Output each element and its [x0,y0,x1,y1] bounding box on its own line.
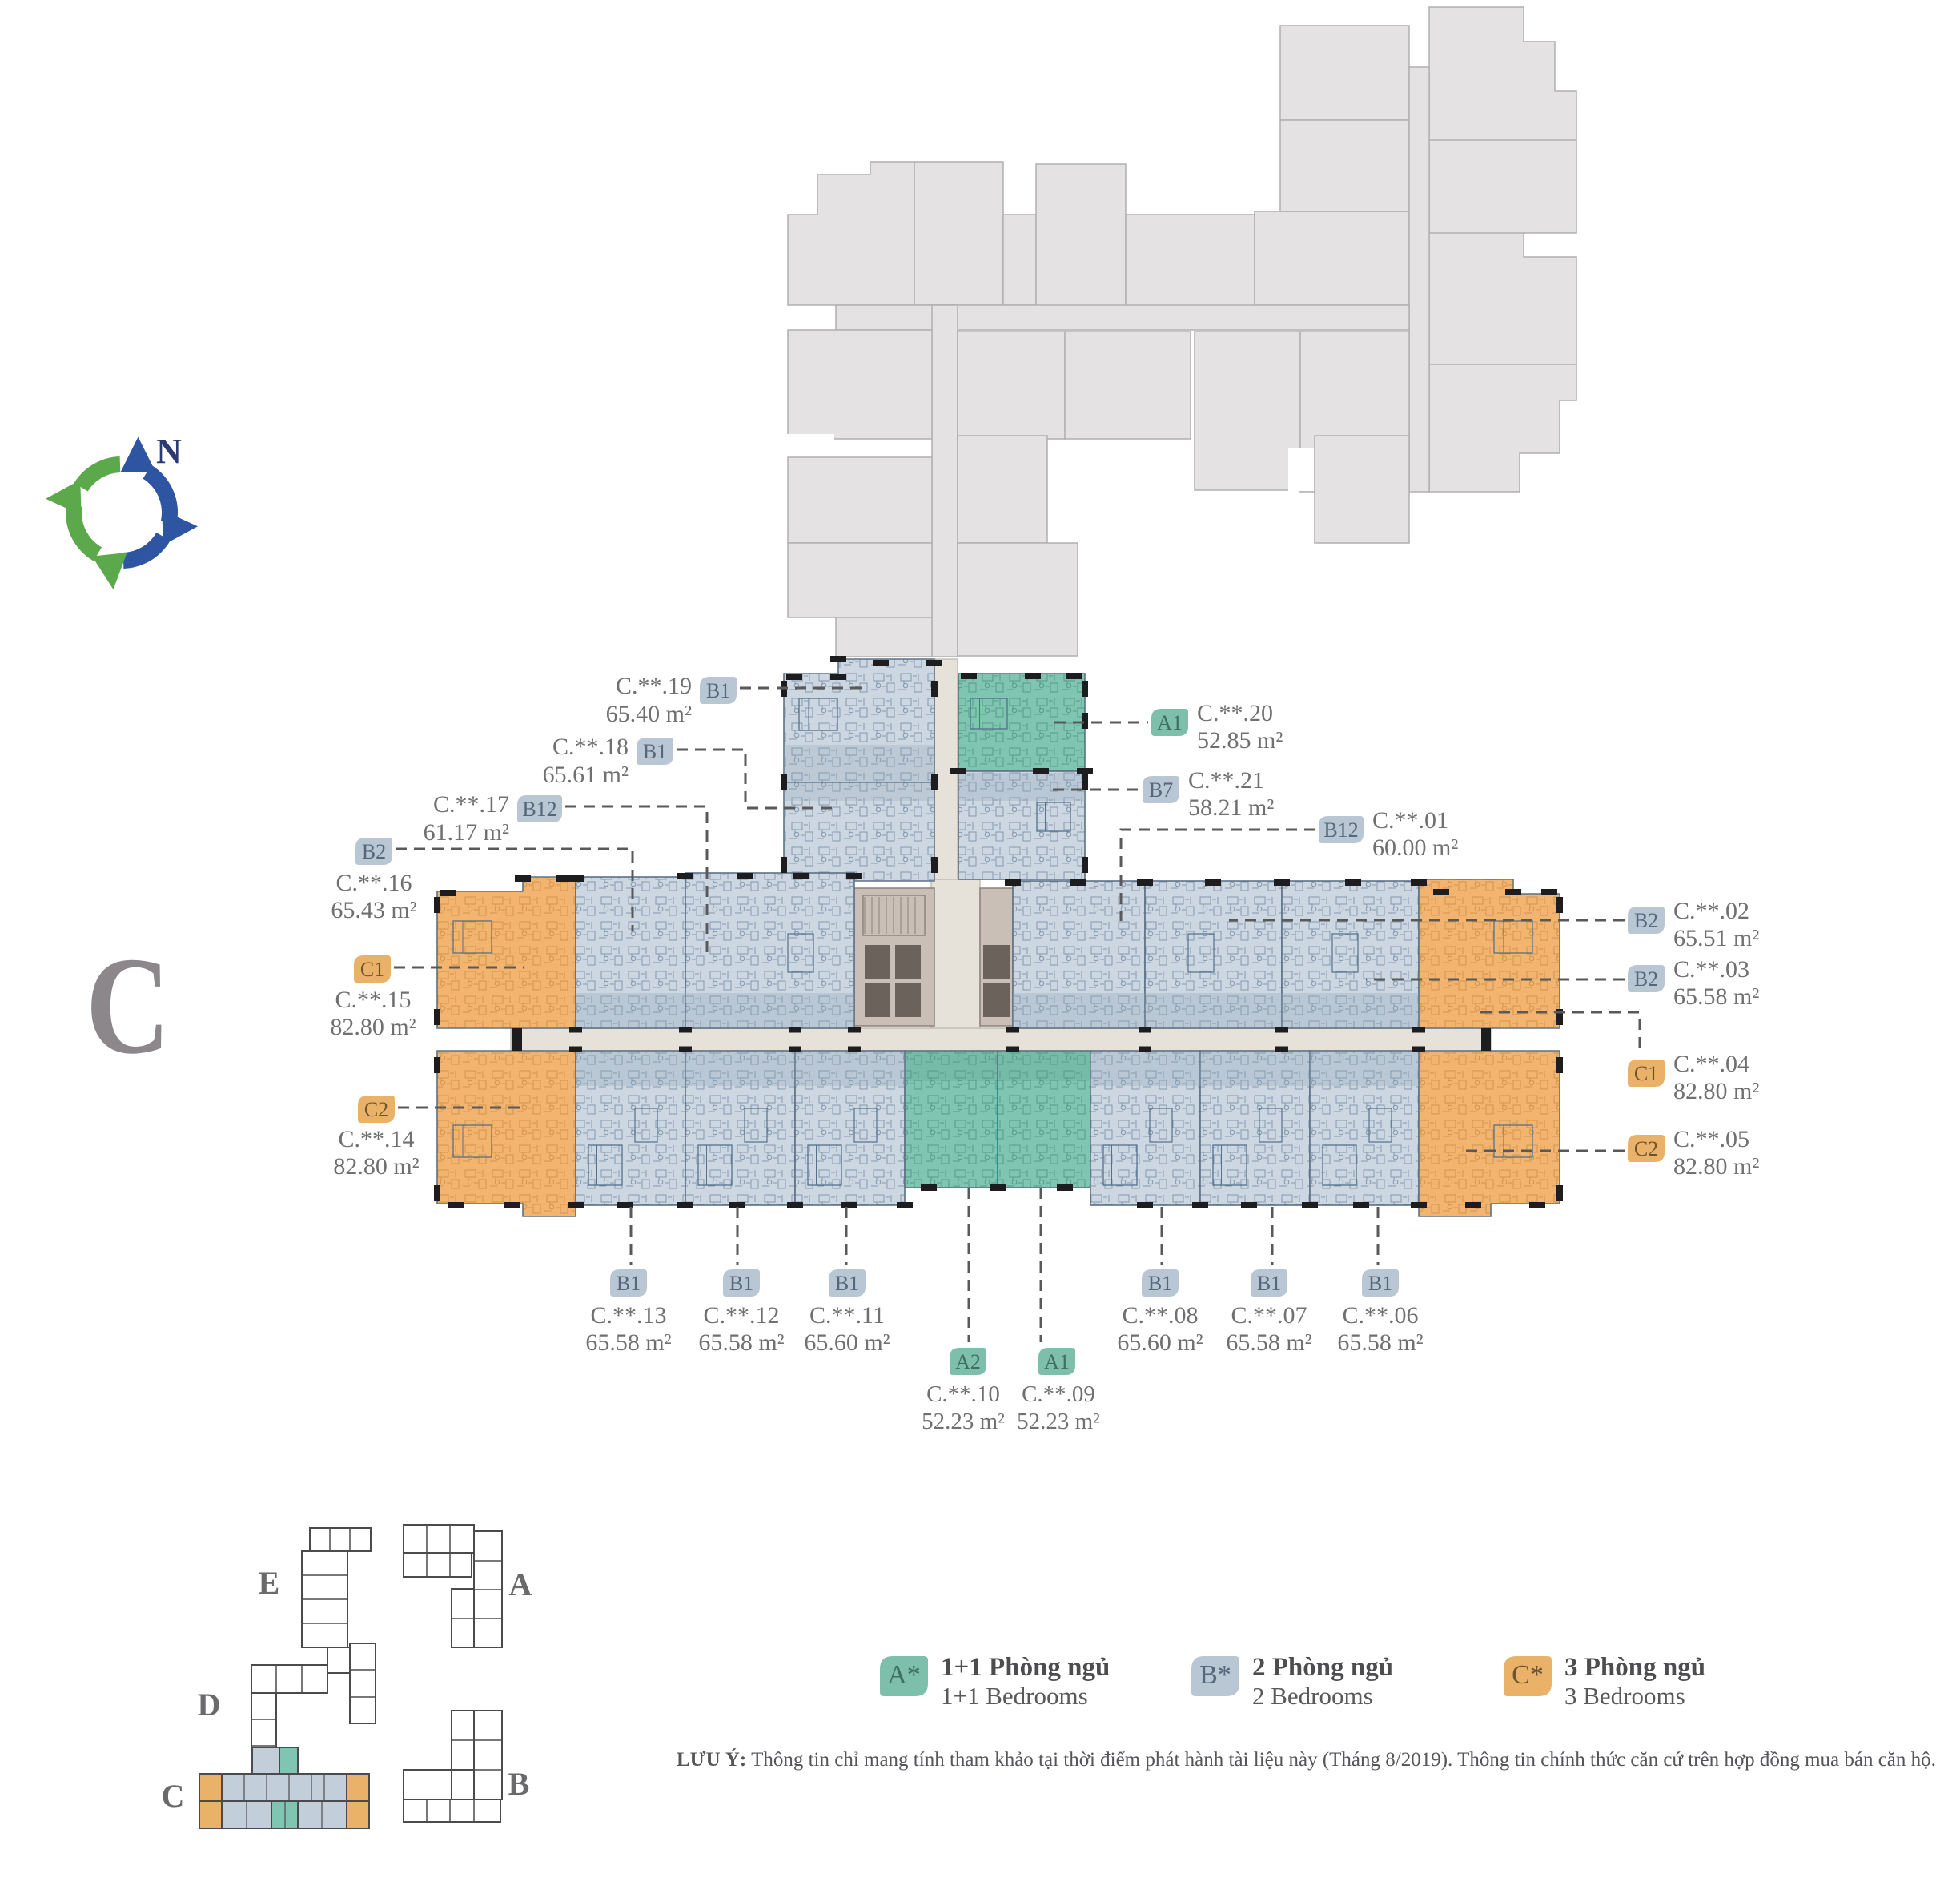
svg-text:C.**.11: C.**.11 [809,1302,885,1329]
svg-text:C.**.02: C.**.02 [1673,898,1749,924]
svg-text:B1: B1 [706,679,730,702]
svg-text:C2: C2 [1634,1137,1658,1160]
svg-text:C.**.06: C.**.06 [1342,1302,1418,1329]
svg-text:A1: A1 [1157,711,1183,734]
svg-text:N: N [156,432,182,471]
svg-text:A: A [509,1566,532,1602]
svg-text:B*: B* [1199,1660,1231,1690]
svg-text:C: C [162,1778,185,1814]
svg-text:1+1 Phòng ngủ: 1+1 Phòng ngủ [941,1653,1110,1682]
svg-text:B: B [508,1766,530,1802]
svg-text:C.**.12: C.**.12 [703,1302,779,1329]
svg-text:65.58 m²: 65.58 m² [585,1329,671,1356]
svg-text:C.**.01: C.**.01 [1372,807,1448,834]
svg-text:C1: C1 [1634,1062,1658,1085]
svg-text:C.**.13: C.**.13 [590,1302,666,1329]
svg-text:3 Phòng ngủ: 3 Phòng ngủ [1564,1653,1705,1682]
svg-text:C.**.05: C.**.05 [1673,1126,1749,1152]
svg-text:C.**.21: C.**.21 [1188,767,1264,794]
svg-text:58.21 m²: 58.21 m² [1188,794,1274,821]
svg-text:C.**.14: C.**.14 [338,1126,414,1152]
svg-text:C.**.17: C.**.17 [433,791,509,818]
svg-text:82.80 m²: 82.80 m² [333,1153,419,1180]
svg-text:B1: B1 [729,1272,753,1295]
svg-text:E: E [259,1565,280,1601]
svg-text:C*: C* [1512,1660,1544,1690]
svg-text:65.43 m²: 65.43 m² [331,897,416,923]
svg-text:61.17 m²: 61.17 m² [424,819,509,846]
svg-text:65.58 m²: 65.58 m² [1226,1329,1311,1356]
svg-text:A2: A2 [955,1350,981,1373]
svg-text:65.58 m²: 65.58 m² [1673,983,1759,1010]
svg-text:3 Bedrooms: 3 Bedrooms [1564,1682,1685,1710]
svg-text:B1: B1 [1368,1272,1392,1295]
svg-text:C.**.20: C.**.20 [1197,700,1273,726]
svg-text:65.40 m²: 65.40 m² [606,701,692,727]
svg-text:A*: A* [887,1660,921,1690]
svg-text:C: C [86,928,171,1083]
svg-text:65.60 m²: 65.60 m² [1117,1329,1203,1356]
svg-text:60.00 m²: 60.00 m² [1372,834,1458,861]
svg-text:B12: B12 [1323,818,1358,842]
svg-text:C.**.03: C.**.03 [1673,956,1749,983]
svg-text:B7: B7 [1149,778,1173,802]
svg-text:B2: B2 [1634,967,1658,991]
svg-text:C.**.19: C.**.19 [616,673,692,699]
svg-text:B1: B1 [835,1272,859,1295]
svg-text:C.**.07: C.**.07 [1231,1302,1307,1329]
svg-text:B1: B1 [617,1272,641,1295]
svg-text:82.80 m²: 82.80 m² [1673,1153,1759,1180]
svg-text:B1: B1 [1257,1272,1281,1295]
svg-text:65.51 m²: 65.51 m² [1673,925,1759,951]
svg-text:82.80 m²: 82.80 m² [330,1014,416,1040]
svg-text:LƯU Ý: Thông tin chỉ mang tính: LƯU Ý: Thông tin chỉ mang tính tham khảo… [677,1748,1936,1771]
svg-text:52.85 m²: 52.85 m² [1197,727,1283,754]
svg-text:B2: B2 [362,840,386,863]
svg-text:B1: B1 [643,740,667,763]
svg-text:C1: C1 [360,958,384,981]
svg-text:C.**.09: C.**.09 [1022,1381,1095,1407]
svg-text:C2: C2 [364,1098,388,1121]
svg-text:52.23 m²: 52.23 m² [1017,1409,1100,1434]
svg-text:C.**.16: C.**.16 [335,870,412,896]
svg-text:82.80 m²: 82.80 m² [1673,1078,1759,1104]
svg-text:C.**.04: C.**.04 [1673,1051,1749,1077]
svg-text:52.23 m²: 52.23 m² [922,1409,1005,1434]
svg-text:C.**.08: C.**.08 [1122,1302,1198,1329]
svg-text:1+1 Bedrooms: 1+1 Bedrooms [941,1682,1088,1710]
svg-text:65.61 m²: 65.61 m² [543,762,629,788]
svg-text:C.**.10: C.**.10 [926,1381,1000,1407]
svg-text:65.58 m²: 65.58 m² [698,1329,784,1356]
svg-text:C.**.15: C.**.15 [335,987,411,1013]
svg-text:C.**.18: C.**.18 [552,734,629,760]
svg-text:A1: A1 [1044,1350,1070,1373]
svg-text:B12: B12 [522,798,556,821]
svg-text:B1: B1 [1148,1272,1172,1295]
svg-text:65.58 m²: 65.58 m² [1337,1329,1423,1356]
svg-text:2 Bedrooms: 2 Bedrooms [1252,1682,1373,1710]
svg-text:D: D [198,1687,221,1723]
svg-text:65.60 m²: 65.60 m² [804,1329,890,1356]
svg-text:B2: B2 [1634,909,1658,932]
svg-text:2 Phòng ngủ: 2 Phòng ngủ [1252,1653,1393,1682]
